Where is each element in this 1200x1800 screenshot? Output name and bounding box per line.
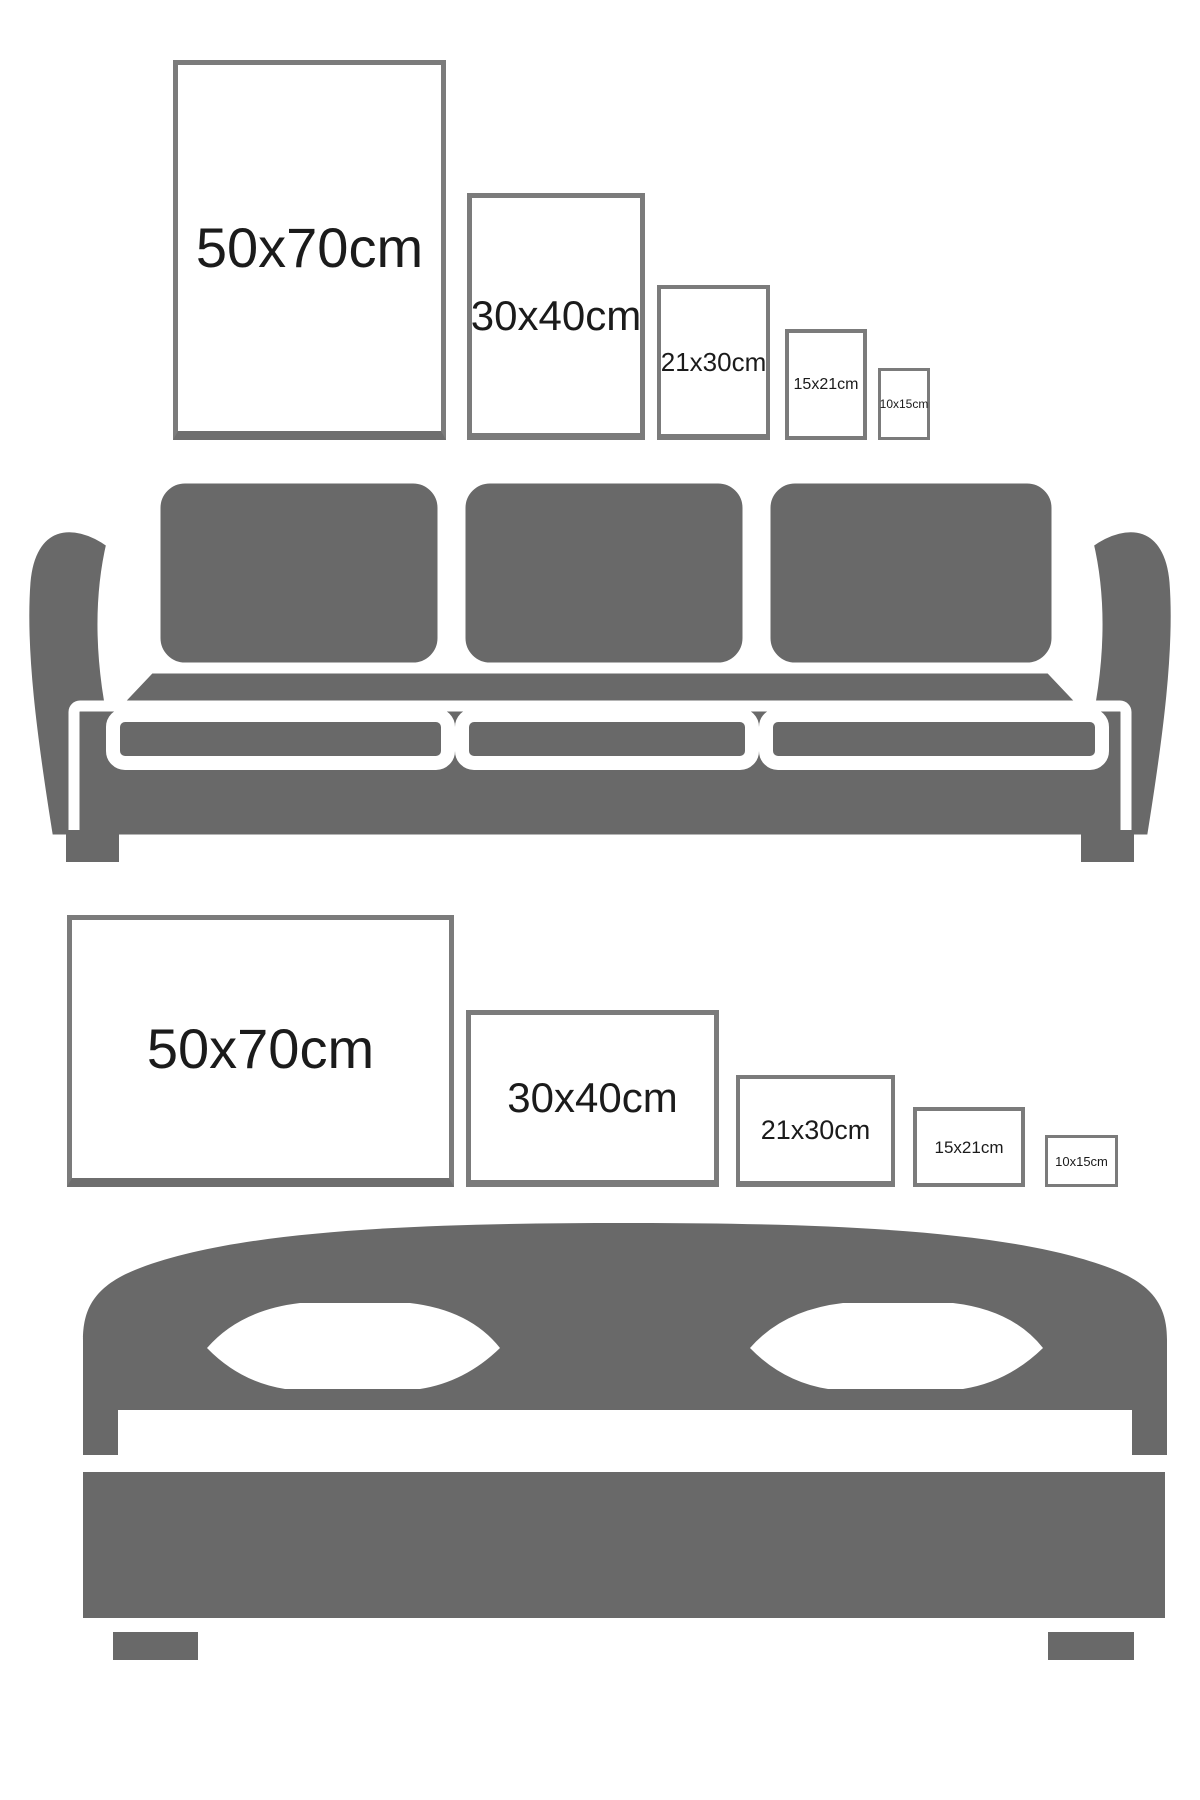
frame-size-label: 21x30cm — [661, 349, 767, 375]
sofa-foot-right — [1081, 830, 1134, 862]
sofa-foot-left — [66, 830, 119, 862]
bed-icon — [0, 1190, 1200, 1680]
frame-size-label: 15x21cm — [794, 377, 859, 393]
bed-pillow-right — [750, 1303, 1043, 1389]
sofa-seat-cushion-left — [113, 715, 448, 763]
frame-10x15-landscape: 10x15cm — [1045, 1135, 1118, 1187]
sofa-back-cushion-left — [155, 478, 443, 668]
frame-30x40-landscape: 30x40cm — [466, 1010, 719, 1187]
bed-pillow-left — [207, 1303, 500, 1389]
frame-size-label: 15x21cm — [935, 1139, 1004, 1156]
frame-size-label: 21x30cm — [761, 1117, 871, 1144]
sofa-seat-cushion-right — [766, 715, 1102, 763]
sofa-back-cushion-middle — [460, 478, 748, 668]
sofa-icon — [0, 400, 1200, 870]
frame-size-label: 30x40cm — [471, 295, 641, 337]
frame-15x21-landscape: 15x21cm — [913, 1107, 1025, 1187]
frame-size-label: 30x40cm — [507, 1077, 677, 1119]
frame-50x70-landscape: 50x70cm — [67, 915, 454, 1187]
sofa-seat-deck — [114, 668, 1086, 706]
sofa-back-cushion-right — [765, 478, 1057, 668]
frame-size-label: 10x15cm — [1055, 1155, 1108, 1168]
sofa-seat-cushion-middle — [462, 715, 752, 763]
bed-base — [83, 1472, 1165, 1618]
frame-size-label: 50x70cm — [196, 220, 423, 276]
poster-size-comparison-graphic: 50x70cm 30x40cm 21x30cm 15x21cm 10x15cm — [0, 0, 1200, 1800]
frame-21x30-landscape: 21x30cm — [736, 1075, 895, 1187]
frame-size-label: 50x70cm — [147, 1021, 374, 1077]
bed-foot-left — [113, 1632, 198, 1660]
frame-50x70-portrait: 50x70cm — [173, 60, 446, 440]
bed-foot-right — [1048, 1632, 1134, 1660]
